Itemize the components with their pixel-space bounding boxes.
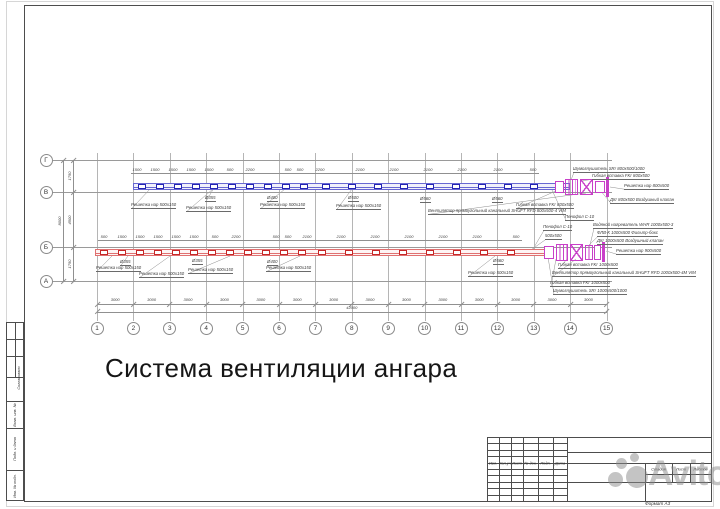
- supply-grille: [300, 184, 308, 189]
- duct-dim-label: 500: [227, 168, 234, 172]
- supply-grille: [530, 184, 538, 189]
- left-dim-line: [63, 160, 64, 281]
- leader-line: [610, 187, 625, 189]
- bottom-dim-label: 3000: [220, 298, 229, 302]
- exhaust-grille: [226, 250, 234, 255]
- exhaust-grille: [298, 250, 306, 255]
- callout-label: Шумоглушитель SRr 800х500/1000: [573, 167, 645, 173]
- left-dim-line: [73, 160, 74, 281]
- duct-dim-label: 2100: [356, 168, 365, 172]
- exhaust-grille: [172, 250, 180, 255]
- titleblock-rev-header: Кол.уч: [499, 460, 511, 465]
- titleblock-vline: [645, 463, 646, 501]
- duct-dim-label: 2200: [316, 168, 325, 172]
- exhaust-grille: [426, 250, 434, 255]
- duct-dim-label: 2200: [246, 168, 255, 172]
- duct-dim-label: 2100: [371, 235, 380, 239]
- grid-column-line: [534, 153, 535, 321]
- grid-column-line: [206, 153, 207, 321]
- column-axis-bubble: 15: [600, 322, 613, 335]
- duct-dim-label: 500: [285, 235, 292, 239]
- exhaust-grille: [280, 250, 288, 255]
- supply-grille: [348, 184, 356, 189]
- duct-dim-label: 1500: [151, 168, 160, 172]
- titleblock-vline: [672, 463, 673, 482]
- grid-row-line: [53, 247, 612, 248]
- exhaust-equipment-box: [544, 246, 554, 259]
- titleblock-hline: [567, 452, 711, 453]
- side-strip-hline: [6, 401, 24, 402]
- callout-label: Решетка нар 500х150: [96, 266, 141, 272]
- callout-label: ДКr 1000х500 Воздушный клапан: [597, 239, 663, 245]
- callout-label: Пенофол С-10: [565, 215, 594, 221]
- callout-label: Решетка нар 500х150: [336, 204, 381, 210]
- column-axis-bubble: 7: [309, 322, 322, 335]
- side-strip-label: Подп. и дата: [13, 437, 17, 461]
- exhaust-equipment-lines: [556, 244, 568, 261]
- grid-row-line: [53, 281, 612, 282]
- column-axis-bubble: 14: [564, 322, 577, 335]
- bottom-dim-label: 3000: [584, 298, 593, 302]
- side-strip-hline: [6, 428, 24, 429]
- callout-label: Пенофол С-10: [543, 225, 572, 231]
- titleblock-rev-header: № док.: [524, 460, 537, 465]
- titleblock-hline: [487, 482, 567, 483]
- duct-dim-label: 2100: [458, 168, 467, 172]
- row-axis-bubble: Г: [40, 154, 53, 167]
- duct-dim-label: 500: [530, 168, 537, 172]
- exhaust-grille: [154, 250, 162, 255]
- bottom-dim-label: 3000: [366, 298, 375, 302]
- exhaust-grille: [507, 250, 515, 255]
- duct-dim-label: 1500: [133, 168, 142, 172]
- grid-row-line: [53, 192, 612, 193]
- exhaust-grille: [480, 250, 488, 255]
- bottom-total-line: [97, 312, 607, 313]
- duct-dim-label: 2100: [494, 168, 503, 172]
- grid-column-line: [133, 153, 134, 321]
- callout-label: Ø560: [493, 259, 504, 265]
- drawing-title: Система вентиляции ангара: [105, 353, 457, 384]
- exhaust-grille: [208, 250, 216, 255]
- exhaust-grille: [262, 250, 270, 255]
- exhaust-equipment-bar: [602, 242, 605, 262]
- callout-label: Решетка нар 500х150: [188, 268, 233, 274]
- supply-grille: [156, 184, 164, 189]
- duct-dim-label: 500: [101, 235, 108, 239]
- duct-dim-label: 1500: [154, 235, 163, 239]
- exhaust-equipment-xbox: [570, 244, 583, 261]
- duct-dim-label: 2100: [390, 168, 399, 172]
- exhaust-grille: [136, 250, 144, 255]
- bottom-dim-label: 3000: [256, 298, 265, 302]
- column-axis-bubble: 12: [491, 322, 504, 335]
- supply-grille: [478, 184, 486, 189]
- left-dim-label: 1750: [68, 260, 72, 269]
- grid-column-line: [170, 153, 171, 321]
- exhaust-equipment-box: [594, 245, 601, 260]
- side-strip-label: Инв. № подл.: [13, 474, 17, 498]
- bottom-dim-label: 3000: [293, 298, 302, 302]
- column-axis-bubble: 8: [345, 322, 358, 335]
- supply-grille: [322, 184, 330, 189]
- supply-equipment-xbox: [580, 179, 593, 195]
- callout-label: Решетка нар 500х150: [266, 266, 311, 272]
- bottom-dim-label: 3000: [438, 298, 447, 302]
- supply-equipment-lines: [565, 179, 578, 195]
- callout-label: Гибкая вставка FKr 800х500: [592, 174, 650, 180]
- leader-line: [590, 228, 594, 245]
- titleblock-rev-header: Изм.: [489, 460, 497, 465]
- grid-column-line: [497, 153, 498, 321]
- exhaust-grille: [318, 250, 326, 255]
- supply-grille: [282, 184, 290, 189]
- titleblock-hline: [645, 474, 711, 475]
- grid-row-line: [53, 160, 612, 161]
- supply-grille: [452, 184, 460, 189]
- callout-label: Ø500: [348, 196, 359, 202]
- callout-label: Ø355: [205, 196, 216, 202]
- column-axis-bubble: 5: [236, 322, 249, 335]
- supply-grille: [426, 184, 434, 189]
- duct-dim-label: 500: [297, 168, 304, 172]
- left-dim-label: 4500: [68, 215, 72, 224]
- exhaust-grille: [190, 250, 198, 255]
- callout-label: Решетка нар 500х150: [131, 203, 176, 209]
- side-strip-hline: [6, 377, 24, 378]
- callout-label: Ø560: [420, 197, 431, 203]
- duct-dim-label: 1500: [118, 235, 127, 239]
- grid-column-line: [97, 153, 98, 321]
- titleblock-hline: [487, 475, 567, 476]
- titleblock-hline: [487, 450, 567, 451]
- supply-grille: [264, 184, 272, 189]
- exhaust-grille: [244, 250, 252, 255]
- exhaust-grille: [100, 250, 108, 255]
- exhaust-grille: [453, 250, 461, 255]
- supply-grille: [504, 184, 512, 189]
- column-axis-bubble: 6: [273, 322, 286, 335]
- callout-label: Шумоглушитель SRr 1000х500/1000: [553, 289, 627, 295]
- bottom-dim-label: 3000: [329, 298, 338, 302]
- duct-dim-label: 1500: [169, 168, 178, 172]
- supply-equipment-box: [595, 181, 605, 193]
- callout-label: Решетка нар 900х500: [616, 249, 661, 255]
- column-axis-bubble: 2: [127, 322, 140, 335]
- bottom-dim-label: 3000: [475, 298, 484, 302]
- supply-grille: [374, 184, 382, 189]
- duct-dim-label: 1500: [190, 235, 199, 239]
- supply-grille: [210, 184, 218, 189]
- callout-label: Водяной нагреватель WHR 1000х500-3: [593, 223, 673, 229]
- duct-dim-label: 1500: [187, 168, 196, 172]
- callout-label: Гибкая вставка FKr 1000х500: [558, 263, 618, 269]
- exhaust-grille: [118, 250, 126, 255]
- supply-grille: [246, 184, 254, 189]
- exhaust-grille: [372, 250, 380, 255]
- callout-label: Решетка нар 500х150: [139, 272, 184, 278]
- grid-column-line: [315, 153, 316, 321]
- callout-label: Ø355: [192, 259, 203, 265]
- supply-equipment-box: [555, 181, 564, 193]
- grid-column-line: [243, 153, 244, 321]
- row-axis-bubble: А: [40, 275, 53, 288]
- exhaust-grille: [399, 250, 407, 255]
- duct-dim-label: 1500: [205, 168, 214, 172]
- exhaust-grille: [345, 250, 353, 255]
- supply-equipment-bar: [606, 177, 609, 197]
- grid-column-line: [388, 153, 389, 321]
- duct-dim-label: 2100: [473, 235, 482, 239]
- titleblock-vline: [690, 463, 691, 482]
- grid-column-line: [461, 153, 462, 321]
- duct-dim-label: 500: [212, 235, 219, 239]
- callout-label: Вентилятор прямоугольный канальный SHUFT…: [552, 271, 696, 277]
- titleblock-vline: [567, 437, 568, 501]
- duct-dim-label: 2200: [232, 235, 241, 239]
- titleblock-rev-header: Дата: [555, 460, 565, 465]
- titleblock-rev-header: Лист: [512, 460, 522, 465]
- bottom-dim-total: 42000: [346, 306, 357, 310]
- exhaust-equipment-lines: [585, 245, 593, 260]
- side-strip-vline: [15, 322, 16, 377]
- callout-label: Ø560: [492, 197, 503, 203]
- callout-label: Решетка нар 500х150: [468, 271, 513, 277]
- column-axis-bubble: 13: [527, 322, 540, 335]
- column-axis-bubble: 11: [455, 322, 468, 335]
- duct-dim-label: 500: [273, 235, 280, 239]
- column-axis-bubble: 10: [418, 322, 431, 335]
- column-axis-bubble: 1: [91, 322, 104, 335]
- titleblock-hline: [487, 443, 567, 444]
- titleblock-hline: [487, 456, 567, 457]
- duct-dim-label: 2100: [303, 235, 312, 239]
- duct-dim-label: 2100: [405, 235, 414, 239]
- bottom-dim-label: 3000: [548, 298, 557, 302]
- supply-grille: [228, 184, 236, 189]
- row-axis-bubble: Б: [40, 241, 53, 254]
- duct-dim-label: 2100: [439, 235, 448, 239]
- column-axis-bubble: 4: [200, 322, 213, 335]
- supply-grille: [138, 184, 146, 189]
- column-axis-bubble: 9: [382, 322, 395, 335]
- titleblock-stage-header: Листов: [693, 466, 707, 471]
- bottom-dim-label: 3000: [402, 298, 411, 302]
- duct-dim-label: 2100: [337, 235, 346, 239]
- callout-label: Гибкая вставка FKr 1000х500: [550, 281, 610, 287]
- side-strip-hline: [6, 470, 24, 471]
- callout-label: Решетка нар 500х150: [260, 203, 305, 209]
- duct-dim-label: 1500: [136, 235, 145, 239]
- titleblock-stage-header: Лист: [676, 466, 686, 471]
- bottom-dim-label: 3000: [184, 298, 193, 302]
- side-strip-label: Взам. инв. №: [13, 403, 17, 426]
- grid-column-line: [352, 153, 353, 321]
- duct-dim-label: 500: [513, 235, 520, 239]
- duct-dim-label: 1500: [172, 235, 181, 239]
- drawing-sheet: 123456789101112131415ГВБА175045001750800…: [0, 0, 720, 509]
- left-dim-label: 1750: [68, 172, 72, 181]
- titleblock-hline: [487, 488, 567, 489]
- supply-grille: [400, 184, 408, 189]
- left-dim-total: 8000: [58, 216, 62, 225]
- supply-grille: [174, 184, 182, 189]
- titleblock-stage-header: Стадия: [651, 466, 666, 471]
- titleblock-border: [487, 437, 711, 438]
- titleblock-hline: [487, 469, 567, 470]
- titleblock-hline: [567, 482, 711, 483]
- callout-label: 500х500: [545, 234, 562, 240]
- duct-dim-label: 500: [285, 168, 292, 172]
- column-axis-bubble: 3: [163, 322, 176, 335]
- format-label: Формат А3: [645, 501, 670, 506]
- callout-label: Ø400: [267, 196, 278, 202]
- grid-column-line: [425, 153, 426, 321]
- side-strip-label: Согласовано: [17, 366, 21, 389]
- callout-label: Вентилятор прямоугольный канальный SHUFT…: [428, 209, 566, 215]
- bottom-dim-label: 3000: [511, 298, 520, 302]
- callout-label: ДКr 800х500 Воздушный клапан: [610, 198, 674, 204]
- bottom-dim-label: 3000: [147, 298, 156, 302]
- duct-dim-label: 2100: [424, 168, 433, 172]
- callout-label: ФЛВ-К 1000х500 Фильтр-бокс: [597, 231, 658, 237]
- supply-grille: [192, 184, 200, 189]
- titleblock-hline: [487, 495, 567, 496]
- bottom-dim-label: 3000: [111, 298, 120, 302]
- row-axis-bubble: В: [40, 186, 53, 199]
- callout-label: Решетка нар 500х150: [186, 206, 231, 212]
- titleblock-rev-header: Подп.: [540, 460, 550, 465]
- callout-label: Решетка нар 800х500: [624, 184, 669, 190]
